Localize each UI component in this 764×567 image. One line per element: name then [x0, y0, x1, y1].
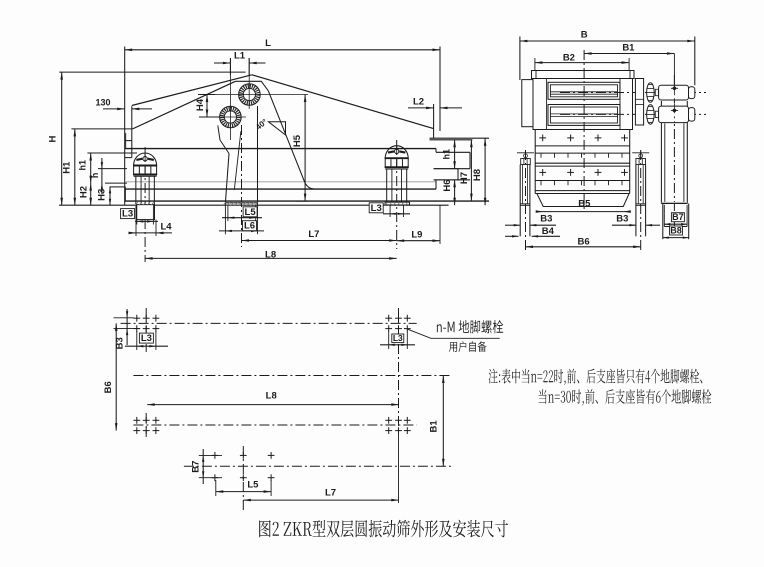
svg-text:H7: H7: [459, 172, 470, 184]
svg-text:B2: B2: [563, 52, 575, 63]
svg-text:L3: L3: [393, 333, 403, 343]
svg-text:h1: h1: [442, 149, 452, 160]
svg-text:B3: B3: [540, 214, 552, 225]
svg-text:L8: L8: [265, 250, 276, 261]
svg-text:H2: H2: [79, 186, 90, 198]
svg-text:B4: B4: [542, 226, 555, 237]
svg-text:H8: H8: [472, 169, 483, 181]
svg-text:L4: L4: [160, 222, 172, 233]
svg-text:B7: B7: [190, 461, 201, 473]
svg-text:L9: L9: [411, 229, 422, 240]
svg-text:B7: B7: [672, 212, 684, 222]
svg-text:H6: H6: [442, 179, 453, 191]
svg-text:h: h: [90, 173, 100, 179]
svg-text:L3: L3: [141, 333, 152, 344]
svg-text:L5: L5: [245, 207, 257, 218]
svg-text:B1: B1: [428, 420, 439, 433]
svg-text:L8: L8: [266, 391, 277, 402]
svg-text:L7: L7: [308, 229, 319, 240]
svg-text:L: L: [265, 38, 271, 49]
svg-text:H4: H4: [195, 98, 206, 111]
svg-text:B6: B6: [578, 237, 590, 248]
svg-text:L3: L3: [371, 203, 382, 214]
svg-text:B1: B1: [622, 43, 635, 54]
svg-text:h1: h1: [78, 160, 88, 171]
svg-text:B6: B6: [103, 381, 114, 393]
svg-text:130: 130: [95, 98, 110, 108]
svg-text:L5: L5: [247, 479, 259, 490]
svg-text:L2: L2: [413, 96, 424, 107]
svg-text:B5: B5: [578, 199, 591, 210]
svg-text:B: B: [581, 30, 588, 41]
svg-text:L3: L3: [122, 209, 133, 220]
svg-text:B3: B3: [616, 214, 628, 225]
svg-text:L6: L6: [244, 221, 255, 232]
svg-text:H5: H5: [292, 134, 303, 147]
svg-text:H1: H1: [62, 161, 73, 174]
svg-text:B8: B8: [670, 225, 682, 235]
svg-text:L7: L7: [325, 488, 336, 499]
svg-text:L1: L1: [234, 51, 246, 62]
svg-text:H: H: [48, 135, 59, 142]
svg-text:H3: H3: [97, 189, 108, 201]
